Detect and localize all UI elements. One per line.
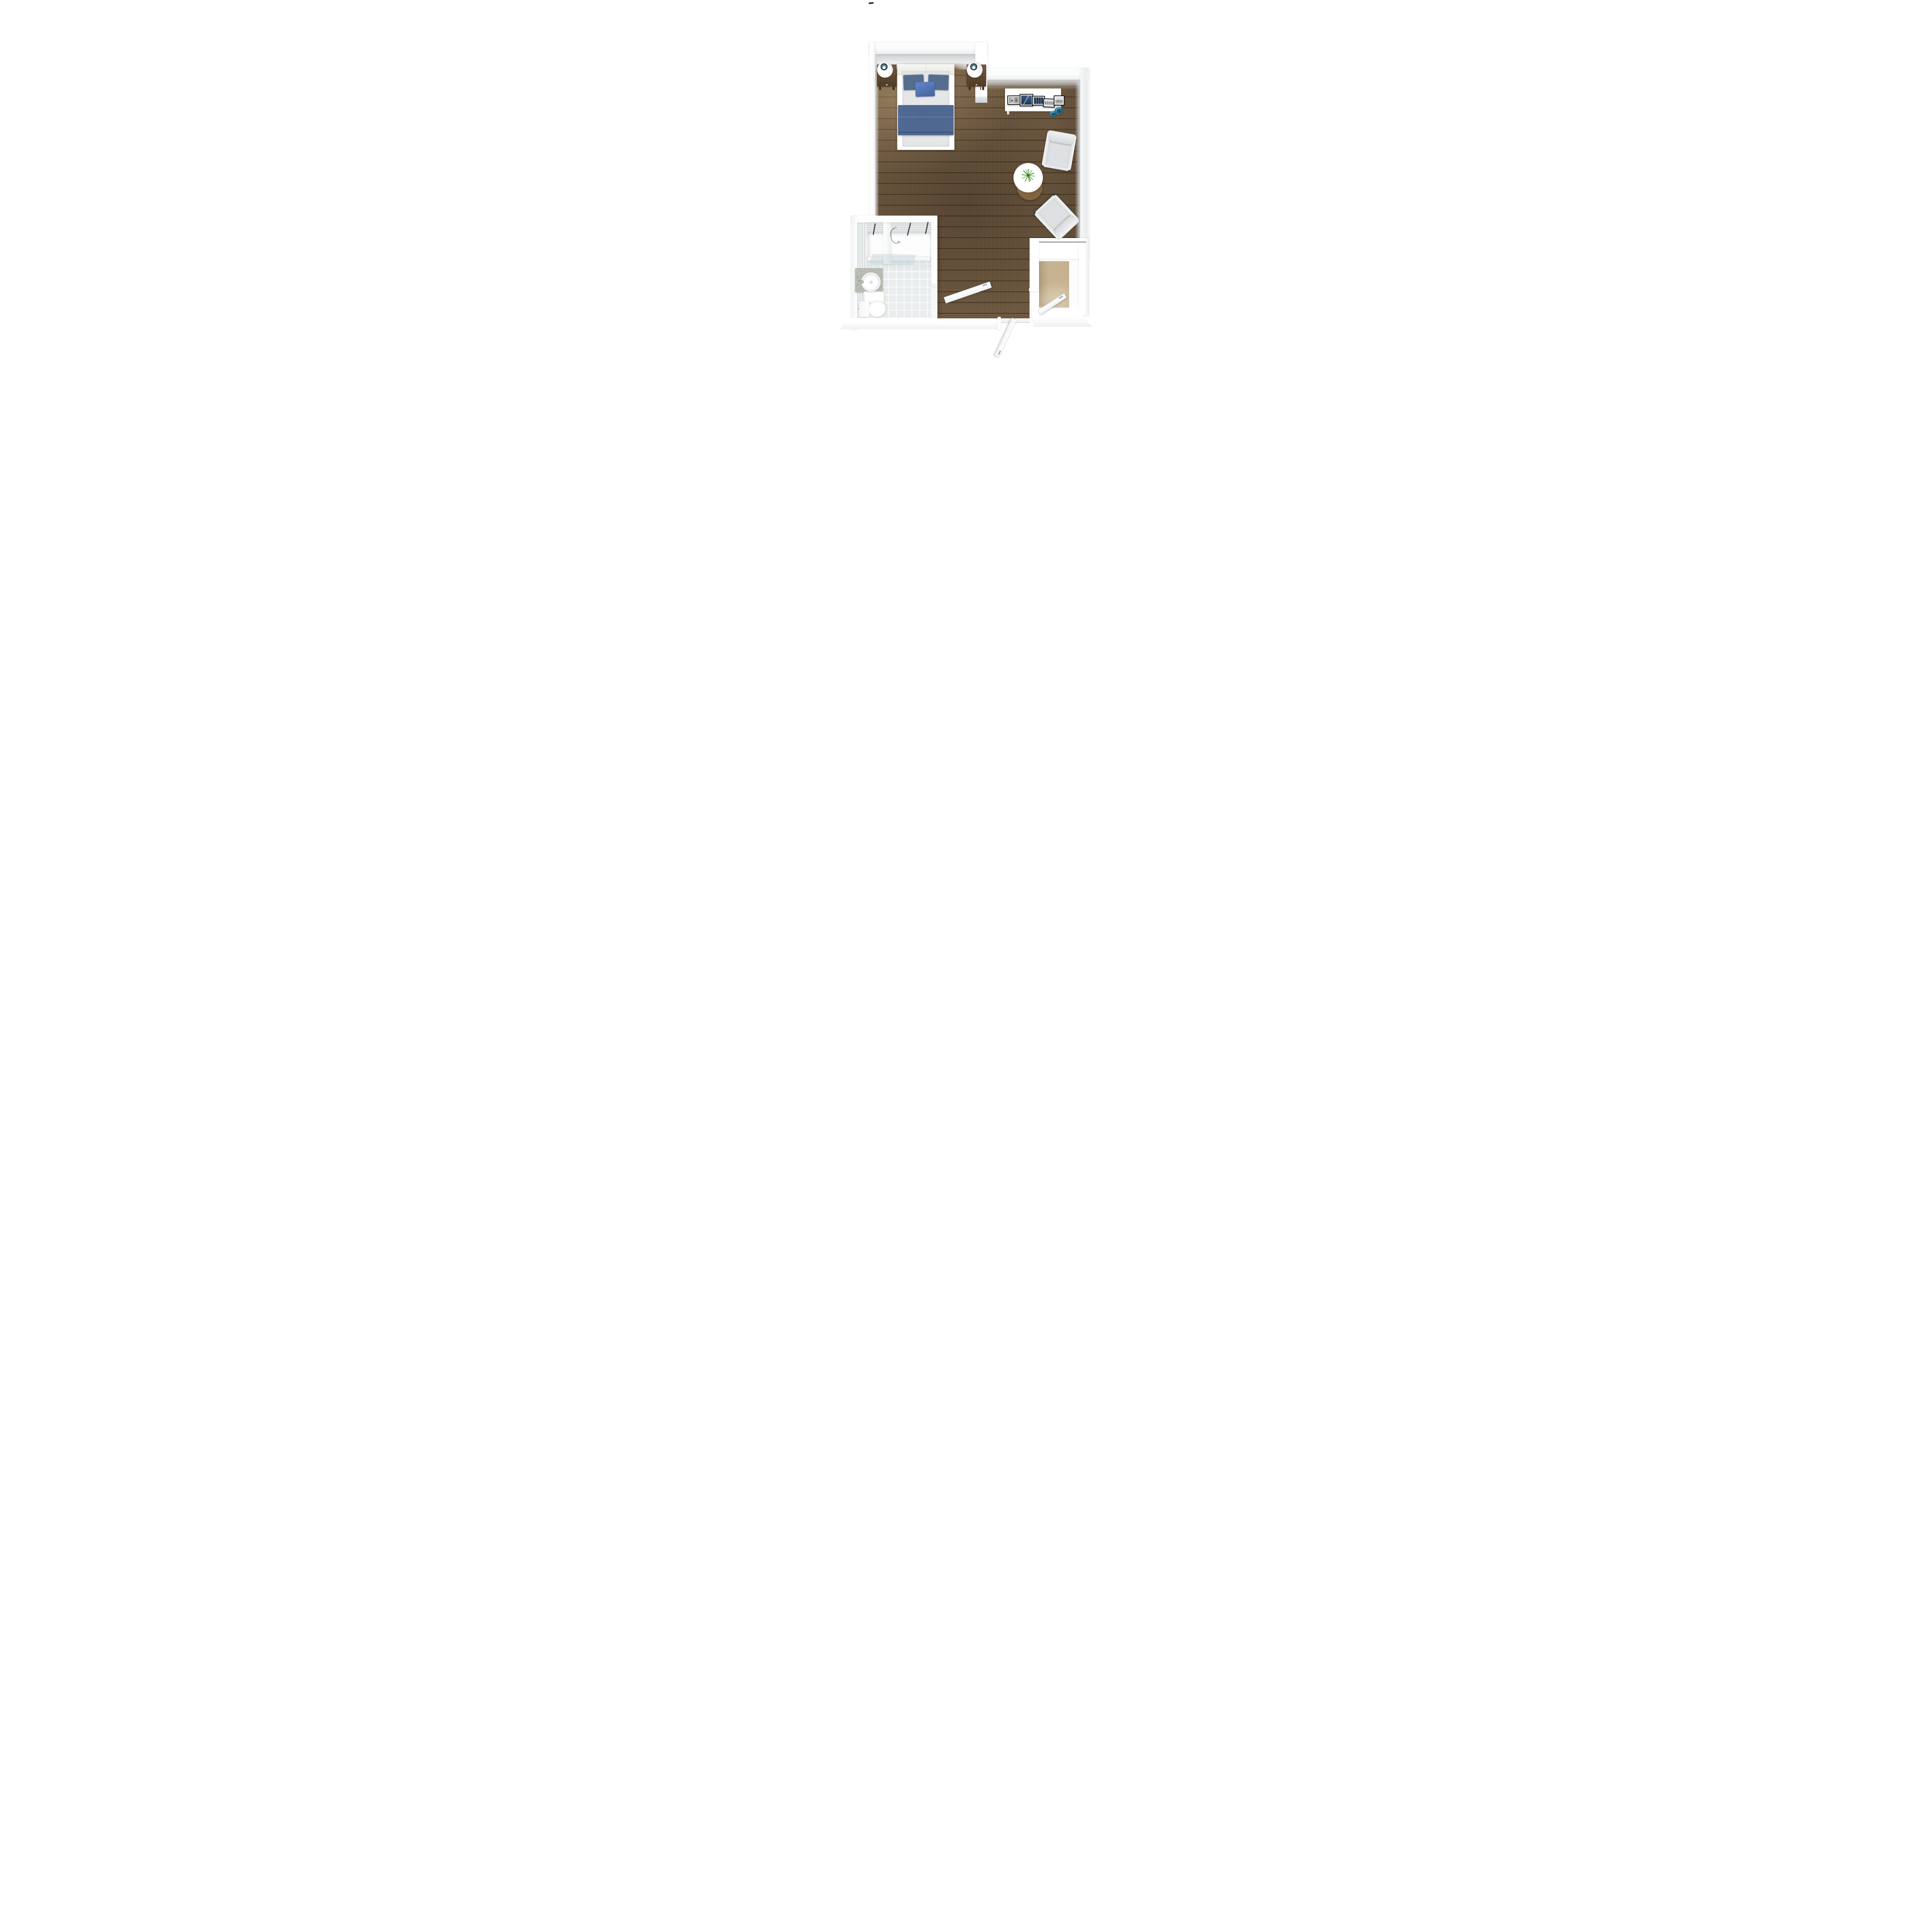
decor-bowl-large [1054, 107, 1063, 114]
bedroom-left-wall [869, 42, 875, 216]
picture-frame-dark-blue [1032, 96, 1045, 105]
bathroom-door-jamb [931, 284, 937, 287]
nightstand-leg [879, 87, 881, 90]
credenza-leg [1007, 111, 1009, 114]
closet-shelf-edge [1039, 241, 1086, 243]
picture-frame-bw-small [1043, 98, 1055, 108]
chair-foot [1068, 170, 1070, 172]
lamp-bulb-icon [972, 66, 975, 69]
faucet-icon [856, 275, 866, 287]
frame-photo [1055, 97, 1063, 104]
door-handle-icon [998, 350, 1001, 355]
closet-door-jamb [1029, 288, 1039, 291]
bathroom-top-wall [851, 216, 937, 223]
bathroom-wall-shadow [937, 216, 943, 318]
door-handle-icon [1058, 296, 1063, 299]
bathroom-doorway-threshold [931, 287, 937, 318]
entry-door-jamb [998, 317, 1001, 330]
chair-seat [1045, 140, 1071, 168]
right-wall-inner-face [1075, 80, 1080, 239]
sink-drain-icon [870, 281, 872, 284]
lamp-bulb-icon [883, 66, 886, 69]
bathroom-right-wall [931, 223, 937, 284]
table-lamp-left [877, 62, 893, 78]
blanket [898, 105, 954, 135]
frame-photo [1021, 95, 1032, 105]
nightstand-leg [982, 87, 984, 90]
frame-photo [1009, 97, 1019, 103]
toilet-tank [859, 301, 869, 317]
bedroom-top-wall [869, 42, 987, 54]
shower-glass-panel [870, 253, 916, 266]
frame-photo [1034, 97, 1043, 104]
drawer-knob-icon [886, 84, 888, 85]
table-lamp-right [967, 62, 983, 78]
closet-left-wall [1030, 238, 1039, 288]
nightstand-leg [893, 87, 895, 90]
frame-photo [1044, 100, 1053, 106]
door-handle-icon [982, 284, 987, 286]
living-top-wall [987, 68, 1089, 80]
armchair-top [1041, 130, 1077, 172]
drawer-knob-icon [976, 84, 977, 85]
right-exterior-wall [1080, 68, 1089, 238]
partition-wall-base [975, 97, 987, 103]
picture-frame-bw-panorama [1007, 95, 1020, 105]
nightstand-leg [969, 87, 971, 90]
picture-frame-bw-beach [1054, 95, 1065, 105]
chair-foot [1042, 165, 1044, 167]
floor-plan-canvas [695, 0, 1237, 383]
picture-frame-blue [1020, 94, 1033, 106]
bottom-exterior-wall-left [841, 318, 998, 329]
pillow-accent-blue [915, 82, 935, 97]
ceiling-fixture-mark [868, 2, 873, 4]
closet-right-wall [1079, 238, 1089, 315]
shower-fixture-icon [888, 226, 903, 249]
potted-plant-icon [1020, 168, 1036, 183]
